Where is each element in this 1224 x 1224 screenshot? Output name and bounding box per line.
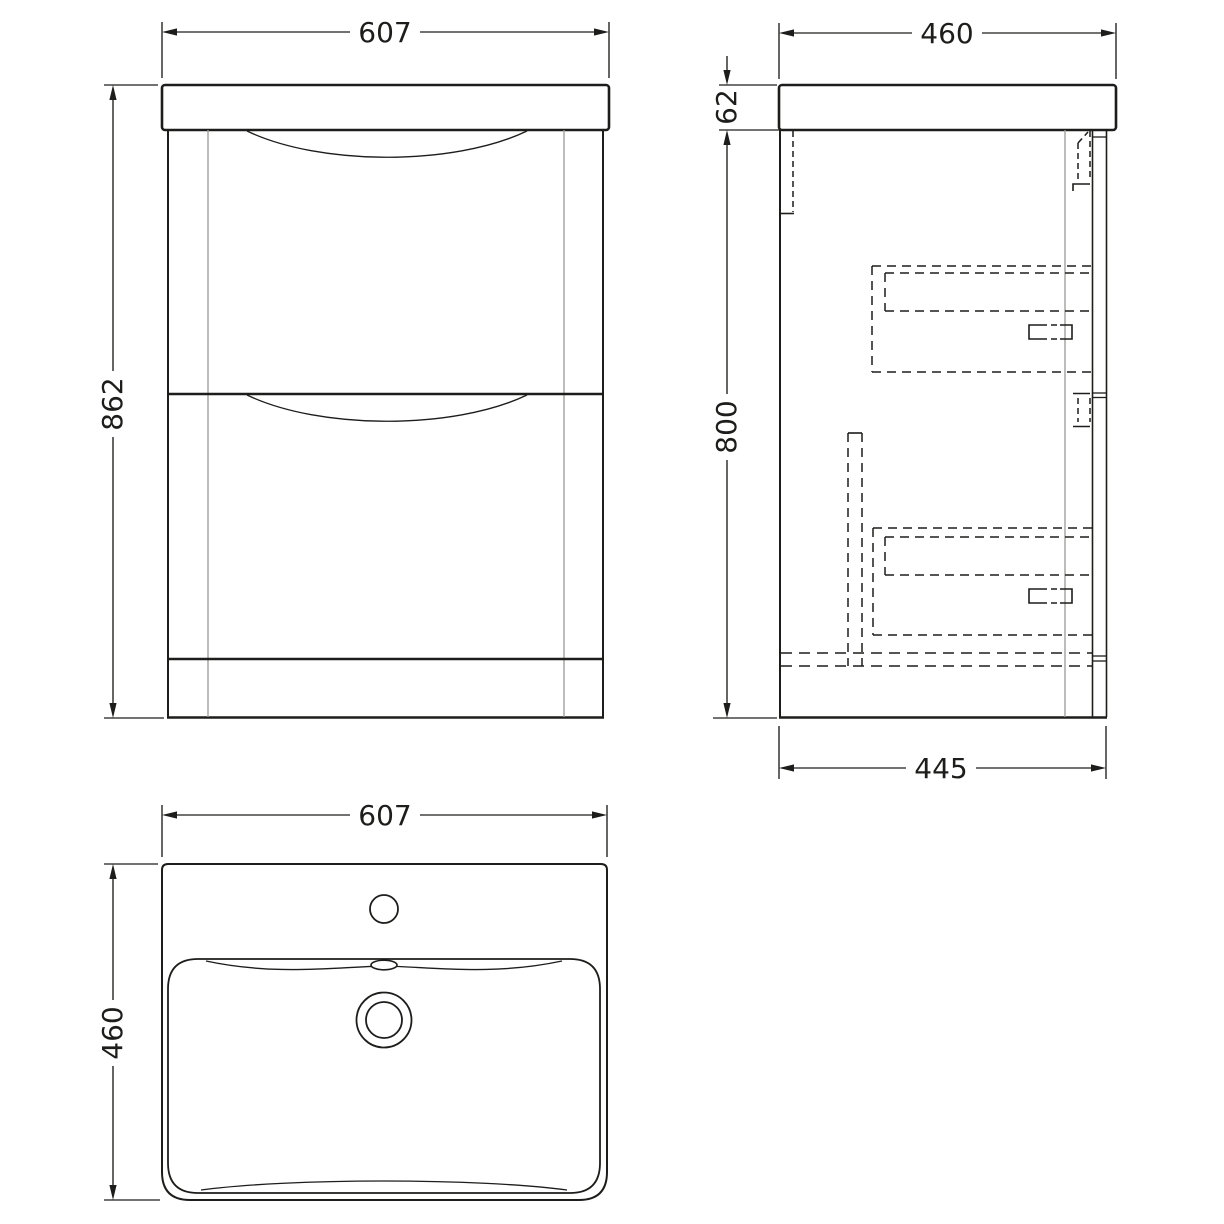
arrowhead-right: [1091, 764, 1106, 771]
side-view: 460 62 800: [710, 17, 1116, 785]
rear-hanger: [1078, 132, 1088, 143]
plan-depth-dimension: 460: [96, 864, 160, 1200]
arrowhead-down: [723, 703, 730, 718]
arrowhead-right: [592, 811, 607, 818]
plan-view: 607 460: [96, 799, 607, 1200]
basin-countertop-side: [779, 85, 1116, 130]
front-view: 607 862: [96, 16, 609, 718]
drain-outer: [357, 993, 412, 1048]
runner-clip-end: [1060, 325, 1072, 339]
side-cabinet-height-dimension: 800: [710, 130, 777, 718]
arrowhead-up: [109, 85, 116, 100]
runner-clip-end: [1029, 325, 1041, 339]
lower-drawer-box-hidden: [873, 528, 1093, 635]
front-width-dimension: 607: [162, 16, 609, 78]
rear-hanger-foot: [1073, 184, 1090, 191]
overflow-slot: [371, 960, 397, 970]
dimension-label-side-depth: 460: [920, 17, 973, 50]
basin-bowl-inner-contour-bottom: [201, 1181, 567, 1190]
upper-drawer-box-hidden: [872, 266, 1093, 372]
dimension-label-front-height: 862: [96, 377, 129, 430]
dimension-label-side-cabinet-height: 800: [710, 400, 743, 453]
technical-drawing: 607 862: [0, 0, 1224, 1224]
runner-clip-end: [1029, 589, 1041, 603]
tap-hole: [370, 895, 398, 923]
arrowhead-up: [723, 130, 730, 145]
plan-width-dimension: 607: [162, 799, 607, 857]
arrowhead-up: [109, 864, 116, 879]
dimension-label-front-width: 607: [358, 16, 411, 49]
bottom-drawer-handle-curve: [247, 395, 527, 421]
arrowhead-left: [162, 28, 177, 35]
top-drawer-handle-curve: [247, 131, 527, 157]
dimension-label-side-base-depth: 445: [914, 752, 967, 785]
arrowhead-left: [779, 764, 794, 771]
arrowhead-right: [1101, 29, 1116, 36]
side-basin-height-dimension: 62: [710, 56, 779, 130]
runner-clip-end: [1060, 589, 1072, 603]
arrowhead-left: [779, 29, 794, 36]
side-base-depth-dimension: 445: [779, 726, 1106, 785]
basin-countertop-front: [162, 85, 609, 130]
arrowhead-down: [109, 1185, 116, 1200]
internal-upright-hidden: [848, 433, 862, 666]
arrowhead-right: [594, 28, 609, 35]
drawing-canvas: 607 862: [0, 0, 1224, 1224]
dimension-label-side-basin-height: 62: [710, 89, 743, 125]
arrowhead-down: [723, 70, 730, 85]
side-depth-dimension: 460: [779, 17, 1116, 79]
dimension-label-plan-depth: 460: [96, 1006, 129, 1059]
cabinet-front: [167, 130, 604, 718]
dimension-label-plan-width: 607: [358, 799, 411, 832]
front-height-dimension: 862: [96, 85, 164, 718]
hidden-details-side: [780, 131, 1093, 666]
cabinet-side: [779, 130, 1107, 718]
arrowhead-down: [109, 703, 116, 718]
arrowhead-left: [162, 811, 177, 818]
